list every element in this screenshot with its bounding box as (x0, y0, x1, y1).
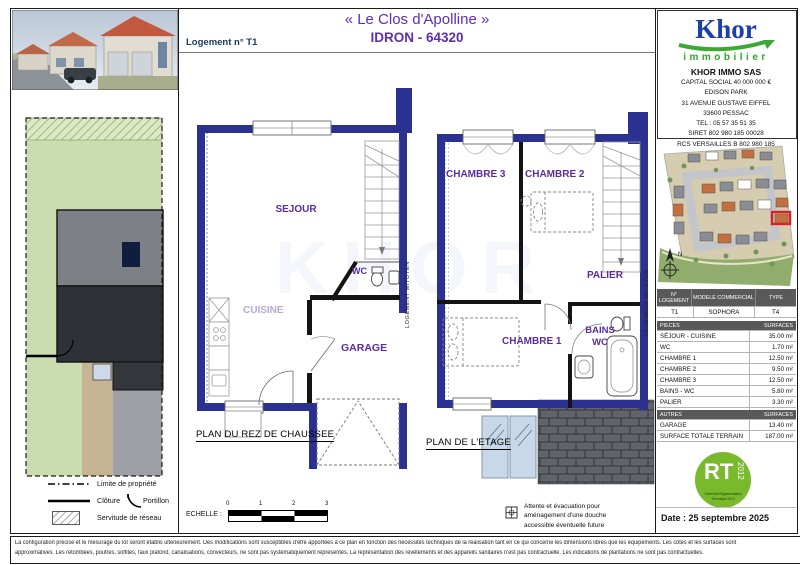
company-name: KHOR IMMO SAS (657, 67, 795, 77)
table-row: SÉJOUR - CUISINE35.00 m² (657, 331, 796, 342)
wall-insulation (205, 133, 209, 403)
company-address: CAPITAL SOCIAL 40 000 000 € EDISON PARK … (657, 78, 795, 150)
table-row: PALIER3.30 m² (657, 397, 796, 408)
scale-tick-0: 0 (226, 501, 229, 507)
kitchen-counter (209, 298, 229, 396)
project-title: « Le Clos d'Apolline » (217, 11, 617, 28)
unit-row: T1 SOPHORA T4 (657, 307, 796, 318)
driveway-area (113, 390, 162, 476)
party-wall-label-rdc: LOGEMENT MITOYEN (405, 242, 411, 328)
washbasin-icon (389, 271, 399, 284)
shower-note-line1: Attente et évacuation pour (524, 502, 654, 511)
ground-floor-plan (185, 83, 420, 473)
room-bains-wc: WC (578, 337, 622, 348)
header-rule (179, 52, 655, 53)
servitude-symbol (52, 511, 80, 525)
unit-col-numero: N° LOGEMENT (657, 289, 691, 306)
rt-badge-sub1: Conforme Réglementation (695, 492, 751, 496)
rt-badge-year: 2012 (736, 462, 745, 480)
unit-col-type: TYPE (755, 289, 796, 306)
plot-plan (11, 88, 178, 482)
scale-tick-2: 2 (292, 501, 295, 507)
disclaimer-line2: approximatives. Les retombées, poutres, … (15, 548, 743, 558)
scale-bar (228, 510, 328, 522)
table-row: CHAMBRE 29.50 m² (657, 364, 796, 375)
company-line: SIRET 802 980 185 00028 (657, 129, 795, 139)
khor-logo: Khor (657, 16, 795, 43)
houses-photo (12, 10, 178, 90)
chambre2-window (545, 130, 595, 154)
disclaimer-line1: La configuration précise et le mesurage … (15, 538, 743, 548)
table-row: BAINS - WC5.80 m² (657, 386, 796, 397)
pieces-surfaces-header: SURFACES (750, 321, 796, 330)
company-line: 33600 PESSAC (657, 109, 795, 119)
scale-label: ECHELLE : (186, 511, 222, 518)
unit-numero: T1 (657, 307, 693, 317)
khor-logo-subtitle: immobilier (657, 52, 795, 63)
etage-stairs (603, 142, 640, 272)
limite-symbol (48, 480, 90, 488)
roof-window (122, 242, 140, 267)
sink-icon (212, 375, 226, 386)
rt-badge-sub2: Thermique 2012 (695, 497, 751, 501)
left-panel-divider (178, 8, 179, 533)
canopy-glass (93, 364, 111, 380)
company-line: EDISON PARK (657, 88, 795, 98)
table-row: CHAMBRE 112.50 m² (657, 353, 796, 364)
room-cuisine: CUISINE (243, 305, 284, 316)
room-bains: BAINS (578, 325, 622, 336)
date-label: Date : 25 septembre 2025 (661, 513, 769, 523)
first-floor-plan (423, 106, 661, 488)
unit-table: N° LOGEMENT MODELE COMMERCIAL TYPE T1 SO… (657, 289, 796, 318)
garage-service-door (307, 300, 335, 403)
table-row: GARAGE13.40 m² (657, 420, 796, 431)
shower-note-line2: aménagement d'une douche (524, 511, 654, 520)
site-plan-map: N (656, 140, 797, 286)
roof-tiles (538, 400, 654, 484)
sejour-window (253, 121, 331, 135)
rt-badge-main: RT (704, 459, 733, 485)
rt2012-badge: RT 2012 Conforme Réglementation Thermiqu… (695, 452, 751, 508)
company-line: 31 AVENUE GUSTAVE EIFFEL (657, 99, 795, 109)
room-garage: GARAGE (341, 342, 387, 354)
logo-swoosh-icon (677, 40, 775, 52)
wall-insulation-etage (445, 142, 449, 400)
portillon-symbol (126, 492, 142, 508)
garage-roof (113, 362, 163, 390)
floor-plan-document: KHOR « Le Clos d'Apolline » IDRON - 6432… (0, 0, 800, 565)
scale-tick-3: 3 (325, 501, 328, 507)
room-sejour: SEJOUR (250, 204, 342, 215)
autres-surfaces-header: SURFACES (750, 410, 796, 419)
room-chambre2: CHAMBRE 2 (525, 169, 584, 180)
chambre3-window (463, 130, 513, 154)
house-lower-roof (57, 286, 163, 362)
lot-label: Logement n° T1 (186, 37, 257, 48)
toilet-icon (372, 272, 383, 286)
party-wall-label-etage: LOGEMENT MITOYEN (644, 250, 650, 336)
unit-col-modele: MODELE COMMERCIAL (691, 289, 755, 306)
cloture-symbol (48, 497, 90, 505)
limite-label: Limite de propriété (97, 479, 157, 488)
scale-tick-1: 1 (259, 501, 262, 507)
company-line: CAPITAL SOCIAL 40 000 000 € (657, 78, 795, 88)
chambre1-window (453, 398, 491, 410)
servitude-label: Servitude de réseau (97, 513, 161, 522)
table-row: WC1.70 m² (657, 342, 796, 353)
room-palier: PALIER (587, 270, 623, 281)
shower-drain-icon (505, 506, 518, 519)
bed-chambre2 (521, 192, 593, 232)
table-row: CHAMBRE 312.50 m² (657, 375, 796, 386)
rdc-stairs (365, 141, 399, 259)
shower-note-line3: accessible éventuelle future (524, 521, 654, 530)
autres-header: AUTRES (657, 410, 750, 419)
entrance-door (259, 371, 293, 405)
rdc-caption: PLAN DU REZ DE CHAUSSEE (196, 429, 334, 442)
pieces-table: PIECES SURFACES SÉJOUR - CUISINE35.00 m²… (657, 321, 796, 419)
project-city: IDRON - 64320 (217, 30, 617, 45)
interior-wall (310, 295, 400, 300)
disclaimer-box: La configuration précise et le mesurage … (10, 536, 800, 564)
autres-table: AUTRES SURFACES GARAGE13.40 m² SURFACE T… (657, 410, 796, 442)
house-upper-roof (57, 210, 163, 286)
date-rule (656, 507, 796, 508)
etage-caption: PLAN DE L'ETAGE (426, 437, 511, 450)
cloture-label: Clôture (97, 496, 120, 505)
compass-north-label: N (678, 252, 682, 258)
unit-type: T4 (754, 307, 796, 317)
portillon-label: Portillon (143, 496, 169, 505)
unit-modele: SOPHORA (693, 307, 755, 317)
shower-note: Attente et évacuation pour aménagement d… (524, 502, 654, 530)
company-line: TEL : 05 57 35 51 35 (657, 119, 795, 129)
room-chambre3: CHAMBRE 3 (446, 169, 505, 180)
room-chambre1: CHAMBRE 1 (502, 336, 561, 347)
stove-icon (214, 328, 219, 333)
pieces-header: PIECES (657, 321, 750, 330)
room-wc-rdc: WC (352, 266, 367, 276)
servitude-strip (26, 118, 162, 140)
table-row: SURFACE TOTALE TERRAIN187.00 m² (657, 431, 796, 442)
